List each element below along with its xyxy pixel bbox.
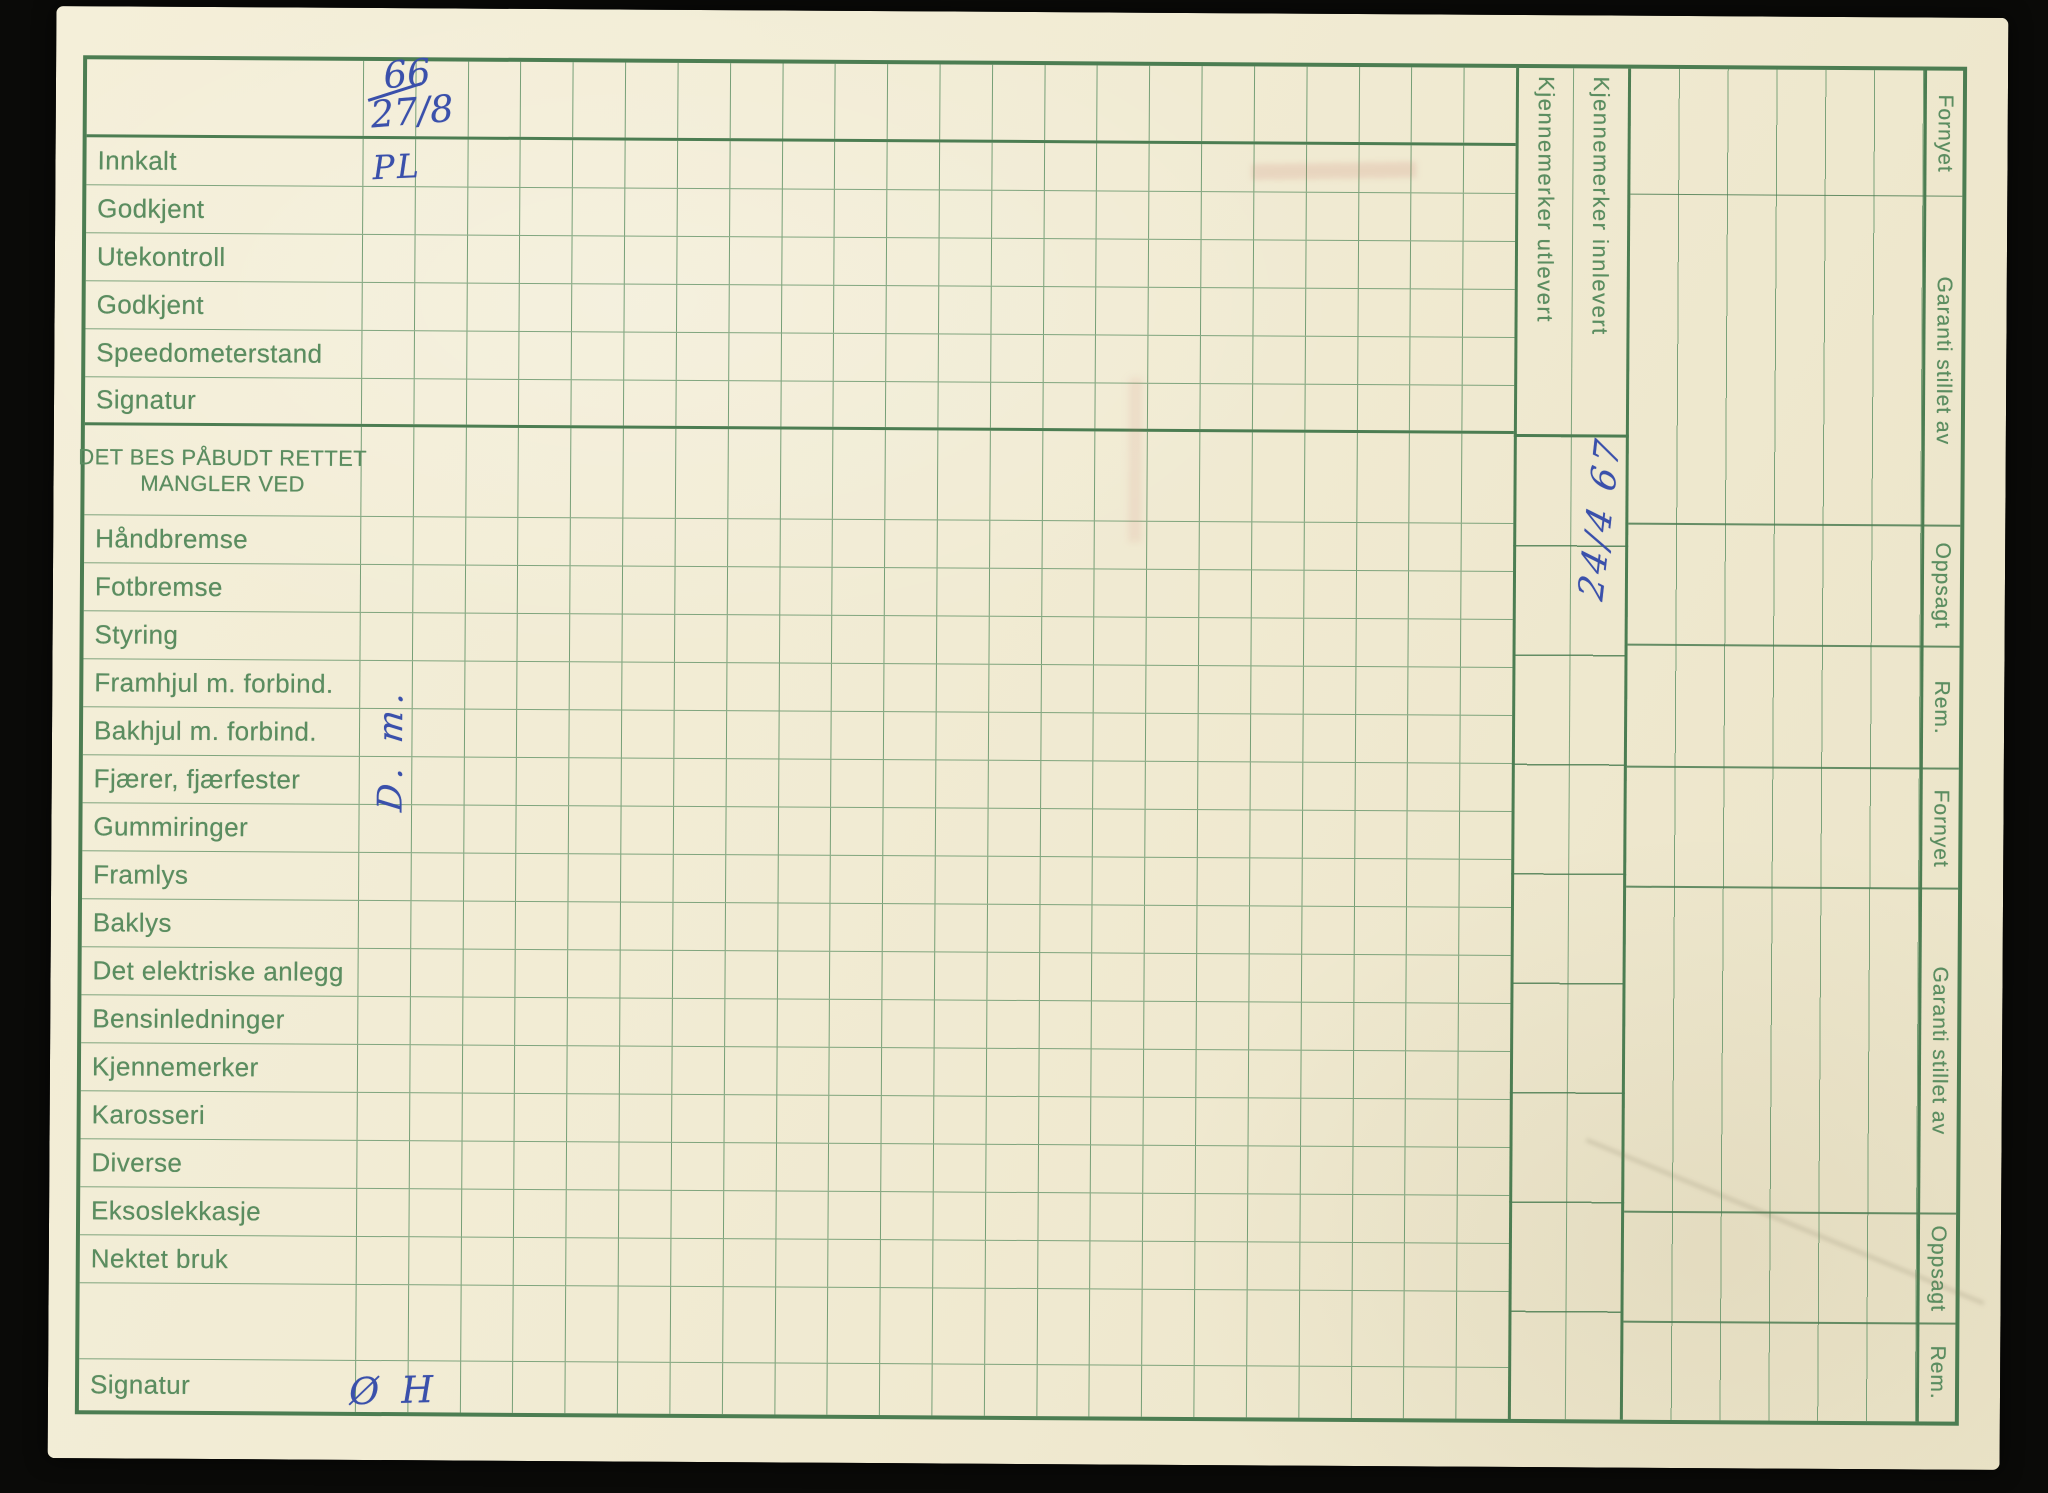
row-cells [360,517,1513,571]
row-label: Det elektriske anlegg [81,947,357,996]
section-title-line2: MANGLER VED [140,470,305,497]
table-row: Signatur [79,1359,1508,1419]
table-row-section-header: DET BES PÅBUDT RETTET MANGLER VED [84,425,1514,524]
column-label-vertical: Kjennemerker innlevert [1586,76,1614,335]
handwritten-signature: Ø H [348,1368,439,1414]
row-label: Kjennemerker [81,1043,357,1092]
row-label: Karosseri [81,1091,357,1140]
row-cells [363,61,1516,143]
row-label: Styring [83,611,359,660]
paper-sheet: Innkalt Godkjent Utekontroll Godkjent Sp… [48,6,2009,1470]
row-label: Nektet bruk [80,1235,356,1284]
table-row: Bensinledninger [81,995,1510,1052]
row-cells [362,139,1515,193]
row-cells [359,757,1512,811]
row-label: Framlys [82,851,358,900]
row-cells [362,187,1515,241]
row-cells [359,613,1512,667]
row-cells [360,427,1514,523]
row-cells [355,1285,1508,1367]
row-label: Håndbremse [84,515,360,564]
table-row: Kjennemerker [81,1043,1510,1100]
row-cells [358,805,1511,859]
handwritten-date-header: 66 27/8 [366,52,455,133]
right-label-fornyet-1: Fornyet [1926,70,1963,196]
row-cells [359,709,1512,763]
table-row: Diverse [80,1139,1509,1196]
scanned-document: Innkalt Godkjent Utekontroll Godkjent Sp… [0,0,2048,1493]
row-cells [357,1045,1510,1099]
right-label-garanti-1: Garanti stillet av [1924,196,1962,525]
table-row: Eksoslekkasje [80,1187,1509,1244]
table-row: Godkjent [86,185,1515,242]
table-row: Innkalt [86,137,1515,194]
row-cells [356,1189,1509,1243]
row-label: Innkalt [86,137,362,186]
row-cells [357,1093,1510,1147]
row-cells [356,1237,1509,1291]
table-row-header [87,59,1516,146]
table-row: Styring [83,611,1512,668]
row-cells [357,949,1510,1003]
row-cells [356,1141,1509,1195]
right-label-rem-1: Rem. [1923,646,1960,768]
row-label: Gummiringer [82,803,358,852]
table-row: Fjærer, fjærfester [83,755,1512,812]
inspection-card: Innkalt Godkjent Utekontroll Godkjent Sp… [75,55,1967,1425]
table-row: Godkjent [85,281,1514,338]
table-row: Håndbremse [84,515,1513,572]
row-cells [358,901,1511,955]
table-row: Framhjul m. forbind. [83,659,1512,716]
row-label: Signatur [79,1359,355,1412]
row-cells [361,379,1514,431]
row-label: Fotbremse [84,563,360,612]
right-label-fornyet-2: Fornyet [1922,768,1959,888]
table-row: Karosseri [81,1091,1510,1148]
table-row: Gummiringer [82,803,1511,860]
table-row: Signatur [85,377,1514,434]
row-label: Framhjul m. forbind. [83,659,359,708]
row-label: Godkjent [85,281,361,330]
right-label-garanti-2: Garanti stillet av [1920,888,1958,1213]
handwritten-initials-innkalt: PL [372,146,422,187]
right-label-rem-2: Rem. [1919,1323,1956,1421]
row-cells [362,235,1515,289]
row-label: Godkjent [86,185,362,234]
row-cells [360,565,1513,619]
row-label [79,1283,355,1360]
row-cells [358,853,1511,907]
row-label: Baklys [82,899,358,948]
row-label: Signatur [85,377,361,424]
table-row: Fotbremse [84,563,1513,620]
right-label-oppsagt-2: Oppsagt [1919,1213,1956,1323]
handwritten-initials-checklist: D. m. [371,683,412,813]
table-row-blank [79,1283,1508,1368]
main-grid: Innkalt Godkjent Utekontroll Godkjent Sp… [79,59,1516,1419]
row-label: Fjærer, fjærfester [83,755,359,804]
column-label-vertical: Kjennemerker utlevert [1532,76,1560,323]
row-label: Speedometerstand [85,329,361,378]
table-row: Framlys [82,851,1511,908]
right-section: Fornyet Garanti stillet av Oppsagt Rem. … [1623,69,1963,1422]
table-row: Nektet bruk [80,1235,1509,1292]
row-cells [361,283,1514,337]
right-label-column: Fornyet Garanti stillet av Oppsagt Rem. … [1916,70,1963,1421]
row-label: Diverse [80,1139,356,1188]
table-row: Bakhjul m. forbind. [83,707,1512,764]
row-cells [359,661,1512,715]
section-title-line1: DET BES PÅBUDT RETTET [78,444,367,472]
table-row: Utekontroll [86,233,1515,290]
table-row: Det elektriske anlegg [81,947,1510,1004]
row-label: Bensinledninger [81,995,357,1044]
row-cells [355,1361,1508,1419]
section-title: DET BES PÅBUDT RETTET MANGLER VED [84,425,361,516]
row-label-empty [87,59,363,136]
right-label-oppsagt-1: Oppsagt [1924,525,1961,646]
table-row: Baklys [82,899,1511,956]
table-row: Speedometerstand [85,329,1514,386]
row-label: Utekontroll [86,233,362,282]
row-cells [361,331,1514,385]
row-label: Bakhjul m. forbind. [83,707,359,756]
row-cells [357,997,1510,1051]
row-label: Eksoslekkasje [80,1187,356,1236]
right-grid-columns [1623,69,1924,1422]
